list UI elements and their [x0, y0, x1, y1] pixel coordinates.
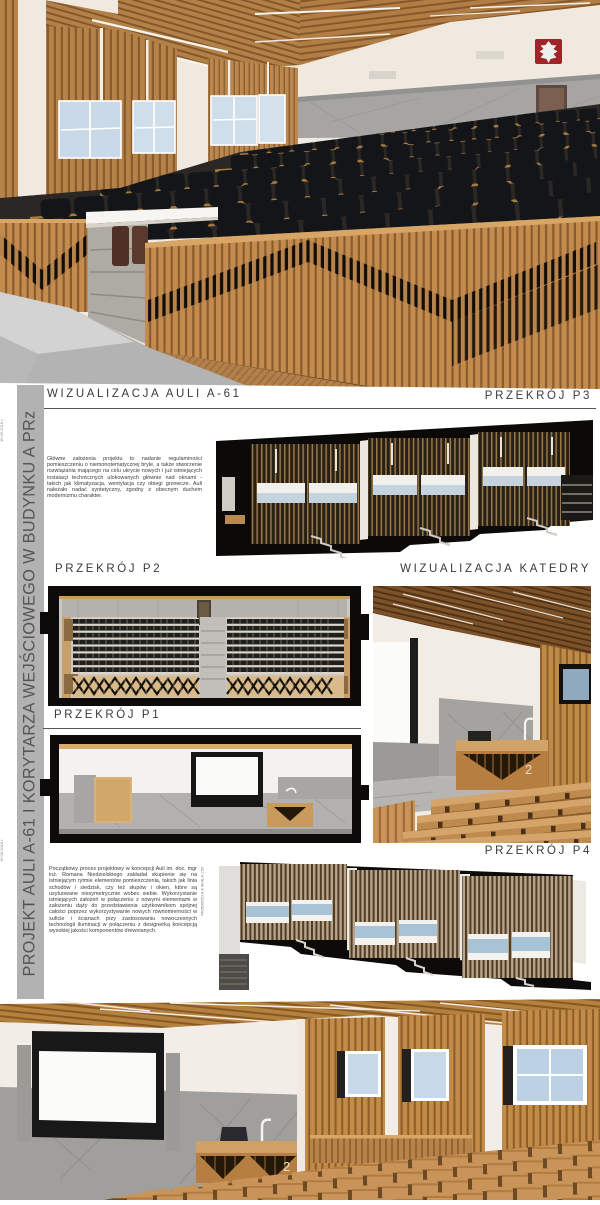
svg-text:2: 2	[525, 762, 532, 777]
svg-text:2: 2	[283, 1159, 290, 1174]
